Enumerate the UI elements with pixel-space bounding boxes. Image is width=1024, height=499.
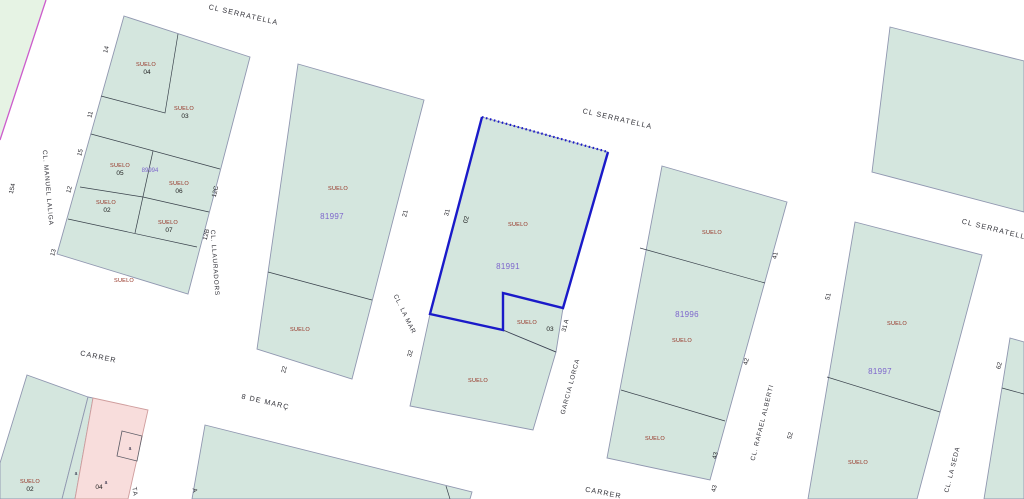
suelo-label: SUELO — [20, 479, 40, 485]
suelo-label: SUELO — [328, 186, 348, 192]
parcel-number-06: 06 — [175, 188, 183, 195]
suelo-label: SUELO — [848, 460, 868, 466]
parcel-block-b[interactable] — [257, 64, 424, 379]
parcel-number-02: 02 — [103, 207, 111, 214]
suelo-label: SUELO — [290, 327, 310, 333]
street-label-carrer-top: CARRER — [80, 348, 118, 364]
street-number-52: 52 — [786, 431, 795, 440]
street-number-13: 13 — [49, 248, 58, 257]
street-number-31a: 31 A — [561, 318, 571, 333]
subparcel-a-label: a — [129, 446, 132, 452]
street-label-serratella-mid: CL SERRATELLA — [582, 106, 654, 131]
parcel-number-05: 05 — [116, 170, 124, 177]
suelo-label: SUELO — [114, 278, 134, 284]
street-number-15: 15 — [76, 148, 85, 157]
suelo-label: SUELO — [702, 230, 722, 236]
street-label-manuel-laliga: CL. MANUEL LALIGA — [41, 150, 55, 226]
suelo-label: SUELO — [672, 338, 692, 344]
street-label-rafael-alberti: CL. RAFAEL ALBERTI — [750, 384, 776, 462]
parcel-number-07: 07 — [165, 227, 173, 234]
parcel-block-topright[interactable] — [872, 27, 1024, 212]
street-number-62: 62 — [995, 361, 1004, 370]
subparcel-a-label: a — [75, 471, 78, 477]
street-number-32: 32 — [406, 349, 415, 358]
parcel-number-c03: 03 — [546, 326, 554, 333]
street-label-8-de-marc: 8 DE MARÇ — [241, 392, 291, 412]
suelo-label: SUELO — [169, 181, 189, 187]
street-label-partial-a: TA — [130, 487, 139, 497]
street-number-43: 43 — [711, 451, 720, 460]
street-number-12: 12 — [65, 185, 74, 194]
suelo-label: SUELO — [136, 62, 156, 68]
street-label-garcia-lorca: GARCIA LORCA — [560, 358, 582, 415]
street-number-14: 14 — [102, 45, 111, 54]
parcel-ref-89994: 89994 — [142, 168, 159, 174]
street-number-21: 21 — [401, 209, 410, 218]
parcel-bottom-center[interactable] — [192, 425, 472, 499]
street-label-carrer-bottom: CARRER — [584, 485, 622, 499]
street-number-51: 51 — [824, 292, 833, 301]
parcel-ref-81997-right: 81997 — [868, 367, 892, 376]
suelo-label: SUELO — [110, 163, 130, 169]
parcel-ref-81997: 81997 — [320, 212, 344, 221]
street-label-serratella-right: CL SERRATELLA — [961, 217, 1024, 243]
street-label-la-mar: CL. LA MAR — [392, 293, 417, 335]
parcel-number-04: 04 — [143, 69, 151, 76]
suelo-label: SUELO — [508, 222, 528, 228]
street-number-11: 11 — [86, 110, 94, 119]
suelo-label: SUELO — [158, 220, 178, 226]
parcel-number-bl02: 02 — [26, 486, 34, 493]
street-number-31: 31 — [443, 208, 452, 217]
street-number-154: 154 — [8, 182, 17, 194]
cadastral-map: SUELO 04 SUELO 03 SUELO 05 89994 SUELO 0… — [0, 0, 1024, 499]
street-number-41: 41 — [771, 251, 780, 260]
street-label-llauradors: CL. LLAURADORS — [209, 230, 221, 297]
street-number-42: 42 — [742, 357, 751, 366]
subparcel-a-label: a — [105, 480, 108, 486]
street-number-12c: 12C — [211, 185, 221, 198]
parcel-block-a[interactable] — [57, 16, 250, 294]
street-number-43b: 43 — [710, 484, 719, 493]
parcel-ref-81991: 81991 — [496, 262, 520, 271]
parcel-ref-81996: 81996 — [675, 310, 699, 319]
parcel-number-bl04: 04 — [95, 484, 103, 491]
street-number-22: 22 — [280, 365, 289, 374]
street-label-serratella-top: CL SERRATELLA — [208, 2, 280, 27]
suelo-label: SUELO — [887, 321, 907, 327]
street-label-la-seda: CL. LA SEDA — [943, 446, 961, 493]
suelo-label: SUELO — [468, 378, 488, 384]
suelo-label: SUELO — [645, 436, 665, 442]
suelo-label: SUELO — [517, 320, 537, 326]
parcel-block-sliver[interactable] — [984, 338, 1024, 499]
suelo-label: SUELO — [96, 200, 116, 206]
map-svg: SUELO 04 SUELO 03 SUELO 05 89994 SUELO 0… — [0, 0, 1024, 499]
suelo-label: SUELO — [174, 106, 194, 112]
parcel-number-03: 03 — [181, 113, 189, 120]
